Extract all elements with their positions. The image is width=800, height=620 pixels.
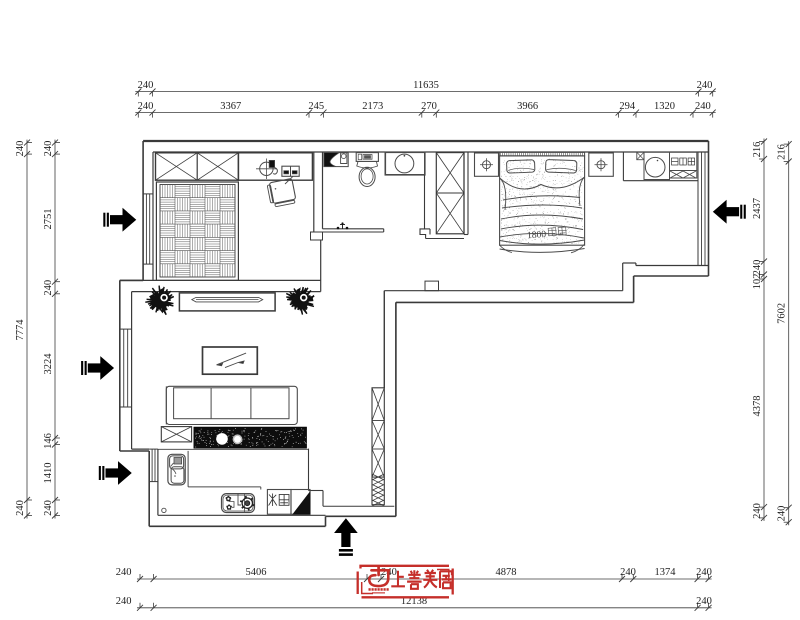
svg-text:240: 240: [43, 141, 54, 157]
svg-text:1800: 1800: [527, 230, 547, 241]
svg-text:240: 240: [752, 503, 763, 519]
svg-text:3224: 3224: [43, 353, 54, 375]
svg-text:1410: 1410: [43, 463, 54, 484]
svg-text:2173: 2173: [362, 101, 383, 112]
svg-text:240: 240: [777, 506, 788, 522]
svg-text:240: 240: [43, 280, 54, 296]
svg-text:2751: 2751: [43, 209, 54, 230]
svg-text:4878: 4878: [496, 567, 517, 578]
svg-text:2437: 2437: [752, 198, 763, 219]
svg-text:294: 294: [619, 101, 636, 112]
svg-text:11635: 11635: [413, 80, 439, 91]
svg-text:146: 146: [43, 433, 54, 449]
svg-text:240: 240: [138, 80, 154, 91]
svg-text:4378: 4378: [752, 396, 763, 417]
svg-text:270: 270: [421, 101, 437, 112]
svg-text:240: 240: [116, 596, 132, 607]
svg-text:102: 102: [752, 274, 763, 290]
svg-text:3367: 3367: [220, 101, 241, 112]
svg-text:240: 240: [116, 567, 132, 578]
svg-text:240: 240: [43, 500, 54, 516]
svg-text:7774: 7774: [15, 319, 26, 341]
svg-text:240: 240: [620, 567, 636, 578]
svg-text:240: 240: [752, 260, 763, 276]
svg-text:240: 240: [15, 141, 26, 157]
svg-text:240: 240: [697, 80, 713, 91]
svg-text:240: 240: [15, 500, 26, 516]
svg-text:3966: 3966: [517, 101, 538, 112]
svg-text:216: 216: [777, 144, 788, 160]
svg-text:1320: 1320: [654, 101, 675, 112]
svg-text:240: 240: [696, 596, 712, 607]
svg-text:240: 240: [696, 567, 712, 578]
svg-text:216: 216: [752, 142, 763, 158]
svg-text:7602: 7602: [777, 303, 788, 324]
svg-text:5406: 5406: [246, 567, 267, 578]
svg-text:245: 245: [308, 101, 324, 112]
svg-text:240: 240: [695, 101, 711, 112]
svg-text:240: 240: [138, 101, 154, 112]
svg-text:1374: 1374: [655, 567, 677, 578]
